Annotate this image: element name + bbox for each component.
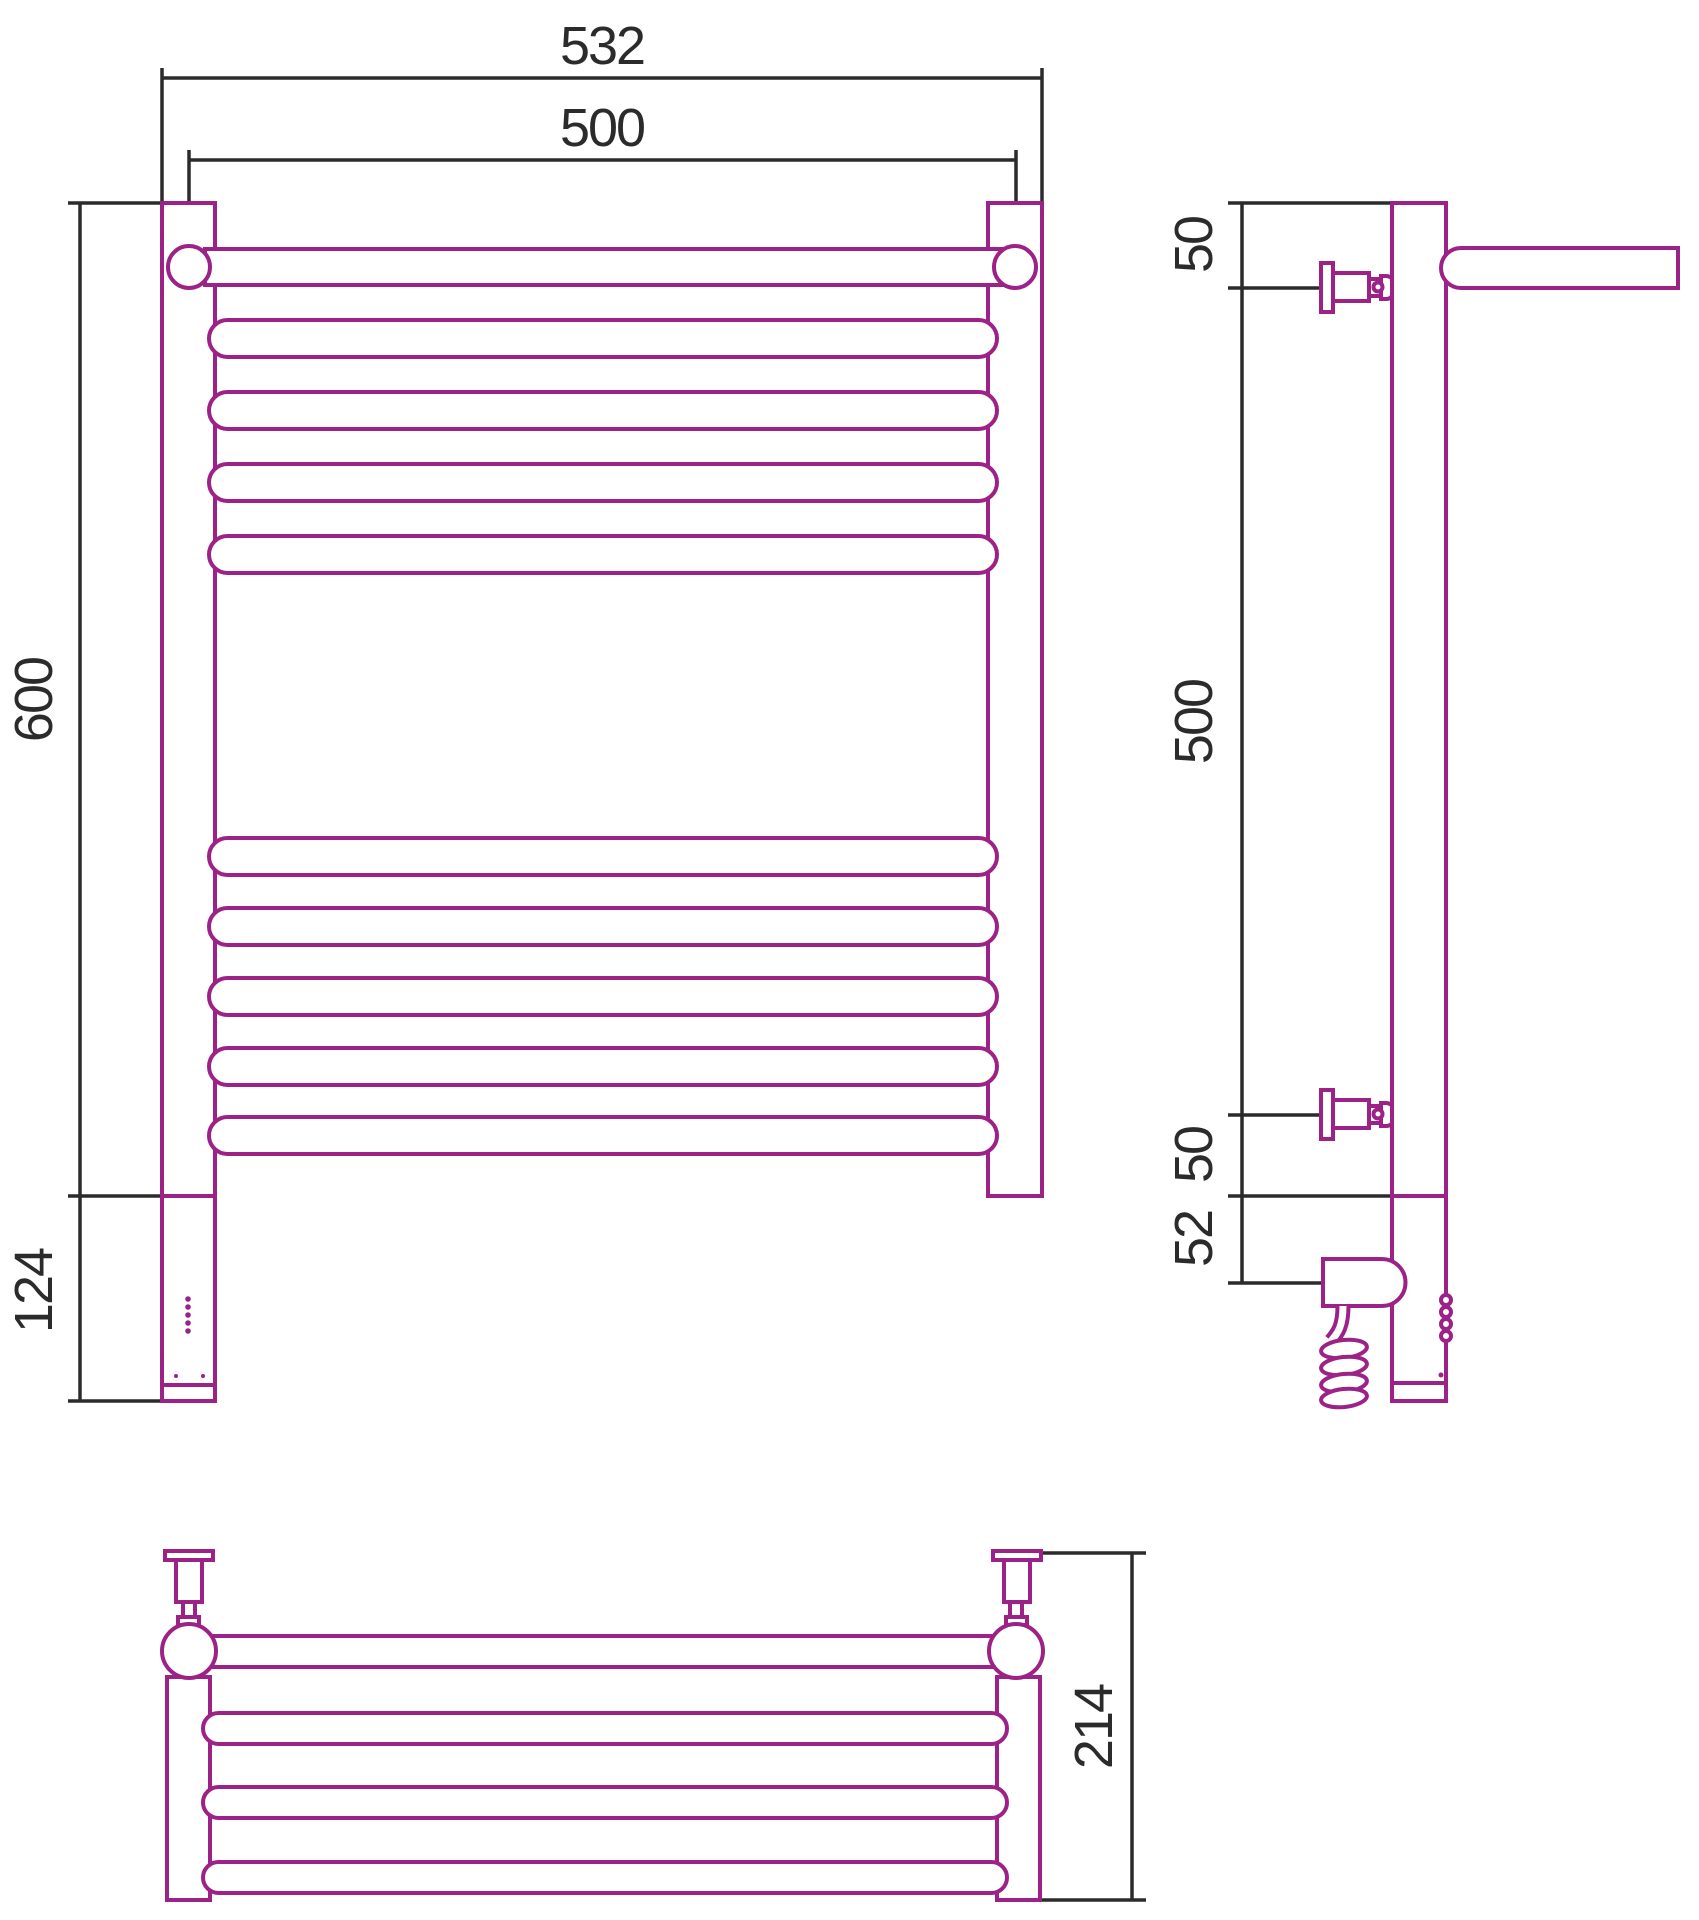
rung-2 — [209, 392, 997, 429]
bump — [1441, 1331, 1451, 1341]
bracket-neck — [1010, 1602, 1022, 1617]
side-view: 50 500 50 52 — [1164, 203, 1678, 1409]
wall-bracket-left-top-view — [165, 1551, 213, 1625]
front-dimensions: 532 500 600 124 — [4, 16, 1042, 1401]
dim-label-heater-offset: 52 — [1164, 1211, 1224, 1267]
heater-housing — [1323, 1259, 1406, 1306]
side-geometry — [1320, 203, 1678, 1409]
left-post-top-view — [167, 1677, 210, 1900]
dim-label-bracket-spacing: 500 — [1164, 680, 1224, 764]
cap-screw-dot — [174, 1374, 178, 1378]
bracket-body — [1333, 273, 1369, 301]
shelf-tube-3 — [203, 1862, 1007, 1893]
rung-1 — [209, 320, 997, 357]
rung-6 — [209, 908, 997, 945]
dim-label-lower-section: 124 — [4, 1248, 64, 1333]
bump — [1441, 1319, 1451, 1329]
rung-7 — [209, 978, 997, 1015]
wall-bracket-top — [1321, 263, 1394, 312]
top-geometry — [162, 1551, 1043, 1900]
led-dot — [185, 1328, 191, 1334]
bracket-body — [1333, 1100, 1369, 1128]
towel-rail-technical-drawing: 532 500 600 124 — [0, 0, 1699, 1920]
top-dimensions: 214 — [1041, 1553, 1146, 1900]
led-dot — [185, 1304, 191, 1310]
led-dot — [185, 1296, 191, 1302]
front-geometry — [162, 203, 1042, 1401]
bracket-screw — [1374, 1110, 1383, 1119]
dim-label-overall-width: 532 — [560, 16, 644, 76]
bracket-screw — [1374, 283, 1383, 292]
top-view: 214 — [162, 1551, 1146, 1900]
right-joint-circle-top-view — [989, 1624, 1043, 1678]
shelf-tube-2 — [203, 1787, 1007, 1818]
left-collector-post — [162, 203, 215, 1401]
rung-4 — [209, 536, 997, 573]
front-view: 532 500 600 124 — [4, 16, 1042, 1401]
touch-control-bumps — [1441, 1295, 1451, 1341]
bracket-neck — [183, 1602, 195, 1617]
dim-label-bottom-offset: 50 — [1164, 1127, 1224, 1183]
led-dot — [185, 1312, 191, 1318]
dim-label-height: 600 — [4, 658, 64, 742]
left-joint-circle — [168, 246, 210, 288]
rung-3 — [209, 464, 997, 501]
left-joint-circle-top-view — [162, 1624, 216, 1678]
profile-side — [1392, 203, 1446, 1401]
shelf-tube-side — [1441, 248, 1678, 288]
rung-5 — [209, 838, 997, 875]
wall-bracket-right-top-view — [993, 1551, 1041, 1625]
bump — [1441, 1295, 1451, 1305]
wall-bracket-bottom — [1321, 1090, 1394, 1139]
bump — [1441, 1307, 1451, 1317]
drawing-sheet: 532 500 600 124 — [0, 0, 1699, 1920]
led-dot — [185, 1320, 191, 1326]
dim-label-depth: 214 — [1064, 1684, 1124, 1769]
rung-9 — [209, 1117, 997, 1154]
cap-screw-dot — [201, 1374, 205, 1378]
rung-8 — [209, 1048, 997, 1085]
power-cable-coil — [1320, 1306, 1368, 1409]
bracket-body — [176, 1560, 202, 1602]
top-rail-tube — [205, 249, 1005, 285]
dim-label-top-offset: 50 — [1164, 217, 1224, 273]
top-rail-tube-top-view — [202, 1636, 1004, 1667]
dim-label-axis-width: 500 — [560, 98, 644, 158]
bracket-body — [1004, 1560, 1030, 1602]
right-collector-post — [988, 203, 1042, 1196]
cap-screw-dot — [1439, 1373, 1444, 1378]
right-joint-circle — [994, 246, 1036, 288]
shelf-tube-1 — [203, 1713, 1007, 1744]
